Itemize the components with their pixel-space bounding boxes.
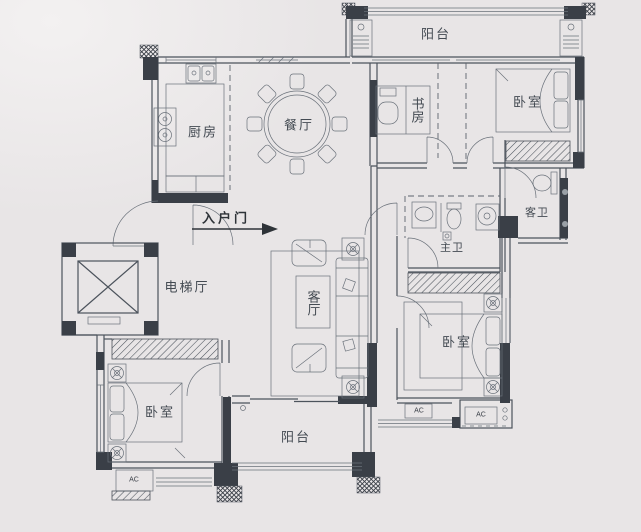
room-label-living: 客厅: [305, 290, 320, 316]
living-room-furniture: [271, 238, 368, 398]
room-label-bedroom-right: 卧室: [442, 332, 472, 351]
guest-bath-fixtures: [533, 172, 557, 194]
floorplan-drawing: [0, 0, 641, 532]
floorplan: 阳台 厨房 餐厅 书房 卧室 客卫 主卫 入户门 电梯厅 客厅 卧室 卧室 阳台…: [0, 0, 641, 532]
desk-chair: [378, 102, 398, 124]
room-label-balcony-top: 阳台: [421, 24, 451, 43]
balcony-top-equipment: [350, 20, 582, 56]
kitchen-stove: [154, 108, 176, 146]
ac-label-1: AC: [414, 408, 424, 415]
room-label-elevator-hall: 电梯厅: [164, 277, 209, 296]
room-label-bedroom-top-right: 卧室: [513, 92, 543, 111]
sofa: [336, 258, 368, 378]
elevator-hall-door-arc: [113, 201, 158, 246]
side-tables: [342, 238, 364, 398]
wardrobe-bedroom-tr: [506, 141, 570, 161]
room-label-dining: 餐厅: [284, 115, 314, 134]
room-label-master-bath: 主卫: [440, 239, 464, 255]
wardrobe-bedroom-mr: [408, 273, 500, 293]
master-bath-door-arc: [408, 238, 438, 268]
elevator-shaft: [62, 243, 158, 335]
master-bath-fixtures: [412, 202, 499, 240]
guest-bath-door-arc: [505, 167, 536, 198]
dashed-partitions: [230, 63, 500, 238]
bedroom-mr-door-arc: [397, 296, 429, 328]
ac-label-3: AC: [129, 477, 139, 484]
kitchen-sink: [186, 64, 216, 83]
room-label-guest-bath: 客卫: [525, 204, 549, 220]
bedroom-bottom-left-furniture: [108, 364, 185, 500]
ac-unit-bottom-left: [112, 470, 153, 500]
room-label-kitchen: 厨房: [188, 122, 218, 141]
bedroom-bl-door-arc: [187, 363, 220, 396]
study-door-arc: [427, 137, 453, 163]
room-label-study: 书房: [409, 97, 424, 123]
bedroom-mid-right-furniture: [404, 294, 507, 426]
hallway-door-arc: [365, 203, 397, 235]
wardrobe-bedroom-bl: [112, 339, 218, 359]
room-label-entrance: 入户门: [202, 208, 250, 227]
bedroom-tr-door-arc: [467, 137, 493, 163]
wardrobes: [112, 141, 570, 359]
structural-columns: [96, 3, 595, 502]
room-label-balcony-bottom: 阳台: [281, 427, 311, 446]
room-label-bedroom-bottom-left: 卧室: [145, 402, 175, 421]
ac-label-2: AC: [476, 412, 486, 419]
